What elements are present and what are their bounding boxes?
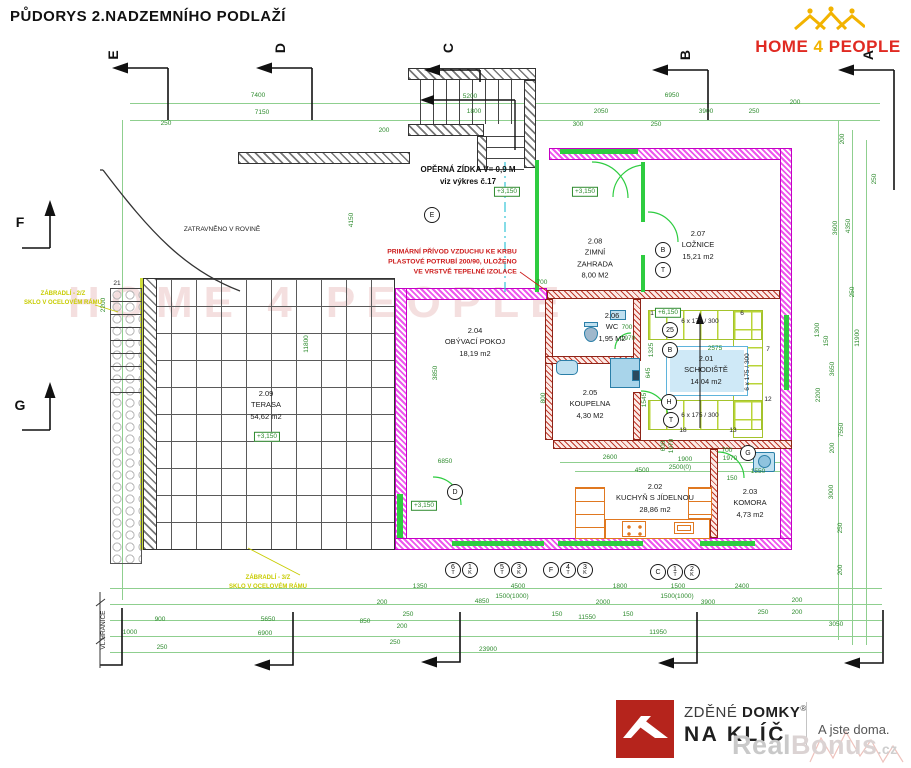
stove	[622, 521, 646, 537]
room-id: 2.03	[733, 486, 766, 497]
reference-marker: 3K	[577, 562, 593, 578]
reference-marker: 25	[662, 322, 678, 338]
zdene-domky-logo	[616, 700, 674, 758]
reference-marker: 1K	[462, 562, 478, 578]
washing-machine-drum	[758, 455, 771, 468]
logo-word-4: 4	[814, 37, 824, 56]
dimension-label: 1500	[671, 584, 685, 591]
dimension-label: 250	[749, 109, 760, 116]
window	[700, 541, 755, 546]
section-letter: B	[677, 50, 693, 60]
dimension-label: 3650	[830, 362, 837, 376]
dimension-label: 250	[850, 287, 857, 298]
marker-sublabel: T	[451, 571, 454, 577]
dimension-label: 1970	[669, 439, 676, 453]
kitchen-sink	[674, 522, 694, 534]
room-name: TERASA	[250, 399, 281, 410]
elevation-tag: +3,150	[572, 187, 598, 197]
room-id: 2.06	[598, 310, 625, 321]
dimension-label: 3600	[833, 221, 840, 235]
watermark-cz: .cz	[878, 741, 898, 757]
kitchen-cabinet-left	[575, 487, 605, 539]
interior-wall	[545, 299, 553, 440]
reference-marker: E	[424, 207, 440, 223]
dimension-label: 200	[397, 624, 408, 631]
marker-sublabel: T	[566, 571, 569, 577]
dimension-label: 1800	[467, 109, 481, 116]
exterior-stair-wall	[408, 68, 536, 80]
room-area: 14,04 m2	[684, 376, 728, 387]
watermark-real: Real	[732, 730, 791, 760]
dimension-label: 4500	[511, 584, 525, 591]
dimension-label: 900	[155, 617, 166, 624]
section-letter: G	[15, 397, 26, 413]
dimension-label: 7550	[839, 423, 846, 437]
window	[560, 149, 638, 154]
roof-icon	[616, 700, 674, 758]
dimension-label: 11550	[578, 615, 596, 622]
dimension-label: 11900	[855, 329, 862, 347]
reference-marker: H	[661, 394, 677, 410]
room-name: ZIMNÍ ZAHRADA	[577, 247, 613, 270]
toilet	[584, 327, 598, 342]
stair-annotation: 13	[729, 428, 736, 435]
stair-annotation: 6	[740, 311, 744, 318]
room-name: KUCHYŇ S JÍDELNOU	[616, 492, 694, 503]
marker-label: G	[745, 450, 750, 457]
dimension-label: 250	[157, 645, 168, 652]
bathroom-washbasin	[556, 360, 578, 375]
room-area: 1,95 M2	[598, 333, 625, 344]
interior-wall	[633, 299, 641, 361]
dimension-label: 1350	[413, 584, 427, 591]
reference-marker: D	[447, 484, 463, 500]
floor-plan-page: { "title": "PŮDORYS 2.NADZEMNÍHO PODLAŽÍ…	[0, 0, 911, 768]
stair-annotation: 6 x 175 / 300	[745, 353, 752, 391]
dimension-label: 6850	[438, 459, 452, 466]
room-area: 4,73 m2	[733, 509, 766, 520]
exterior-stair-wall	[524, 80, 536, 168]
dimension-label: 1900	[678, 457, 692, 464]
section-letter: F	[16, 214, 25, 230]
dimension-label: 250	[872, 174, 879, 185]
dimension-label: 11950	[649, 630, 667, 637]
dimension-label: 850	[360, 619, 371, 626]
dimension-label: 250	[161, 121, 172, 128]
partition-glazing	[641, 255, 645, 292]
elevation-tag: +6,150	[655, 308, 681, 318]
terrace-edge-wall	[143, 278, 157, 550]
dimension-label: 1970	[723, 456, 737, 463]
dimension-label: 250	[403, 612, 414, 619]
dimension-label: 2200	[816, 388, 823, 402]
room-id: 2.09	[250, 388, 281, 399]
dimension-label: 3000	[829, 485, 836, 499]
reference-marker: C	[650, 564, 666, 580]
dimension-label: 200	[792, 598, 803, 605]
room-name: SCHODIŠTĚ	[684, 364, 728, 375]
kitchen-counter	[605, 519, 710, 539]
dimension-label: 3850	[433, 366, 440, 380]
marker-label: B	[661, 247, 666, 254]
dim-line	[110, 620, 882, 621]
terrace-door	[397, 494, 403, 538]
dimension-label: 2050	[594, 109, 608, 116]
room-id: 2.01	[684, 353, 728, 364]
reference-marker: B	[662, 342, 678, 358]
room-label: 2.02KUCHYŇ S JÍDELNOU28,86 m2	[616, 481, 694, 515]
reference-marker: 6T	[445, 562, 461, 578]
dimension-label: 11800	[304, 335, 311, 353]
page-title: PŮDORYS 2.NADZEMNÍHO PODLAŽÍ	[10, 8, 286, 25]
brand-zdene: ZDĚNÉ	[684, 704, 742, 721]
dimension-label: 2600	[603, 455, 617, 462]
outdoor-stair-steps	[110, 288, 142, 403]
room-name: KOMORA	[733, 497, 766, 508]
floor-plan-drawing: HOME 4 PEOPLE	[0, 0, 911, 768]
reference-marker: T	[655, 262, 671, 278]
home4people-logo: HOME 4 PEOPLE	[748, 6, 908, 57]
dimension-label: 250	[390, 640, 401, 647]
stair-annotation: 6 x 175 / 300	[681, 413, 719, 420]
room-label: 2.01SCHODIŠTĚ14,04 m2	[684, 353, 728, 387]
marker-label: T	[669, 417, 673, 424]
home4people-houses-icon	[791, 6, 865, 32]
marker-label: B	[668, 347, 673, 354]
brand-domky: DOMKY	[742, 704, 800, 721]
dimension-label: 300	[573, 122, 584, 129]
dimension-label: 200	[377, 600, 388, 607]
dimension-label: 600	[661, 441, 668, 452]
reference-marker: 5T	[494, 562, 510, 578]
partition-glazing	[641, 162, 645, 222]
reference-marker: G	[740, 445, 756, 461]
dimension-label: 200	[840, 134, 847, 145]
dimension-label: 2400	[735, 584, 749, 591]
dimension-label: 6900	[258, 631, 272, 638]
dimension-label: 1800	[613, 584, 627, 591]
section-letter: E	[105, 50, 121, 59]
elevation-tag: +3,150	[254, 432, 280, 442]
dimension-label: 5650	[261, 617, 275, 624]
dimension-label: 3900	[699, 109, 713, 116]
room-label: 2.05KOUPELNA4,30 M2	[570, 387, 611, 421]
room-area: 4,30 M2	[570, 410, 611, 421]
marker-label: 25	[666, 327, 674, 334]
dim-line	[110, 636, 882, 637]
dimension-label: 5200	[463, 94, 477, 101]
room-name: LOŽNICE	[682, 239, 715, 250]
dimension-label: 4350	[846, 219, 853, 233]
dimension-label: 4850	[475, 599, 489, 606]
brand-line1: ZDĚNÉ DOMKY®	[684, 704, 807, 721]
room-area: 54,62 m2	[250, 411, 281, 422]
dimension-label: 200	[838, 565, 845, 576]
dimension-label: 200	[792, 610, 803, 617]
stair-annotation: 12	[764, 397, 771, 404]
plan-note: ZATRAVNĚNO V ROVINĚ	[184, 225, 260, 235]
dimension-label: 1000	[123, 630, 137, 637]
dimension-label: 1545	[642, 393, 649, 407]
room-id: 2.04	[445, 325, 505, 336]
reference-marker: F	[543, 562, 559, 578]
dim-line	[110, 588, 882, 589]
stair-annotation: 6 x 175 / 300	[681, 319, 719, 326]
marker-sublabel: K	[468, 571, 472, 577]
dimension-label: 2500(0)	[669, 465, 691, 472]
reference-marker: 2K	[684, 564, 700, 580]
room-area: 15,21 m2	[682, 251, 715, 262]
reference-marker: 1T	[667, 564, 683, 580]
dim-line	[110, 604, 882, 605]
elevation-tag: +3,150	[411, 501, 437, 511]
room-id: 2.05	[570, 387, 611, 398]
marker-label: E	[430, 212, 435, 219]
plan-note: VL.HRANICE	[99, 610, 109, 649]
stair-annotation: 1	[650, 311, 654, 318]
room-id: 2.08	[577, 236, 613, 247]
reference-marker: T	[663, 412, 679, 428]
dimension-label: 1500(1000)	[660, 594, 693, 601]
dimension-label: 3050	[829, 622, 843, 629]
exterior-stair-treads	[420, 80, 524, 124]
room-id: 2.02	[616, 481, 694, 492]
section-letter: C	[440, 43, 456, 53]
dimension-label: 250	[758, 610, 769, 617]
window	[784, 315, 789, 390]
dimension-label: 150	[727, 476, 738, 483]
reference-marker: 4T	[560, 562, 576, 578]
exterior-stair-wall	[408, 124, 484, 136]
retaining-wall	[238, 152, 410, 164]
dimension-label: 2575	[708, 346, 722, 353]
marker-sublabel: T	[673, 573, 676, 579]
exterior-wall	[395, 288, 547, 300]
realbonus-watermark: RealBonus.cz	[732, 730, 898, 761]
dimension-label: 6950	[665, 93, 679, 100]
room-label: 2.04OBÝVACÍ POKOJ18,19 m2	[445, 325, 505, 359]
dim-line	[838, 120, 839, 640]
dimension-label: 645	[646, 368, 653, 379]
window	[452, 541, 544, 546]
room-label: 2.07LOŽNICE15,21 m2	[682, 228, 715, 262]
shower-door	[632, 370, 640, 381]
marker-sublabel: K	[583, 571, 587, 577]
dimension-label: 150	[824, 336, 831, 347]
dimension-label: 200	[830, 443, 837, 454]
stair-annotation: 21	[113, 281, 120, 288]
room-label: 2.08ZIMNÍ ZAHRADA8,00 M2	[577, 236, 613, 281]
room-label: 2.09TERASA54,62 m2	[250, 388, 281, 422]
marker-label: D	[452, 489, 457, 496]
dimension-label: 200	[379, 128, 390, 135]
plan-note: OPĚRNÁ ZÍDKA V= 0,9 M viz výkres č.17	[420, 164, 515, 188]
dimension-label: 1300	[815, 323, 822, 337]
dimension-label: 4150	[349, 213, 356, 227]
marker-label: F	[549, 567, 553, 574]
dimension-label: 150	[623, 612, 634, 619]
dimension-label: 23900	[479, 647, 497, 654]
dim-line	[852, 130, 853, 645]
plan-note: ZÁBRADLÍ - 2/Z SKLO V OCELOVÉM RÁMU	[24, 290, 102, 308]
dimension-label: 7150	[255, 110, 269, 117]
marker-sublabel: K	[517, 571, 521, 577]
winter-garden-glazing	[535, 160, 539, 292]
plan-note: ZÁBRADLÍ - 3/Z SKLO V OCELOVÉM RÁMU	[229, 574, 307, 592]
logo-word-people: PEOPLE	[829, 37, 901, 56]
dimension-label: 250	[838, 523, 845, 534]
dimension-label: 700	[722, 448, 733, 455]
dimension-label: 1550	[751, 469, 765, 476]
elevation-tag: +3,150	[494, 187, 520, 197]
room-label: 2.03KOMORA4,73 m2	[733, 486, 766, 520]
dimension-label: 7400	[251, 93, 265, 100]
room-area: 28,86 m2	[616, 504, 694, 515]
marker-sublabel: K	[690, 573, 694, 579]
section-letter: D	[272, 43, 288, 53]
dimension-label: 4500	[635, 468, 649, 475]
watermark-bonus: Bonus	[791, 730, 878, 760]
dim-line	[866, 140, 867, 645]
room-area: 8,00 M2	[577, 269, 613, 280]
room-name: WC	[598, 321, 625, 332]
plan-note: PRIMÁRNÍ PŘÍVOD VZDUCHU KE KRBU PLASTOVÉ…	[387, 248, 517, 279]
marker-label: H	[666, 399, 671, 406]
dimension-label: 150	[552, 612, 563, 619]
window	[558, 541, 643, 546]
dimension-label: 200	[790, 100, 801, 107]
dimension-label: 250	[651, 122, 662, 129]
room-area: 18,19 m2	[445, 348, 505, 359]
room-id: 2.07	[682, 228, 715, 239]
logo-word-home: HOME	[755, 37, 808, 56]
stair-annotation: 18	[679, 428, 686, 435]
dimension-label: 3900	[701, 600, 715, 607]
marker-sublabel: T	[500, 571, 503, 577]
dimension-label: 2000	[596, 600, 610, 607]
room-name: OBÝVACÍ POKOJ	[445, 336, 505, 347]
marker-label: C	[655, 569, 660, 576]
dimension-label: 800	[541, 393, 548, 404]
dimension-label: 1500(1000)	[495, 594, 528, 601]
interior-wall	[547, 290, 780, 299]
room-name: KOUPELNA	[570, 398, 611, 409]
reference-marker: 3K	[511, 562, 527, 578]
reference-marker: B	[655, 242, 671, 258]
dimension-label: 1325	[649, 343, 656, 357]
marker-label: T	[661, 267, 665, 274]
dimension-label: 700	[537, 280, 548, 287]
stair-annotation: 7	[766, 347, 770, 354]
room-label: 2.06WC1,95 M2	[598, 310, 625, 344]
home4people-wordmark: HOME 4 PEOPLE	[748, 37, 908, 57]
